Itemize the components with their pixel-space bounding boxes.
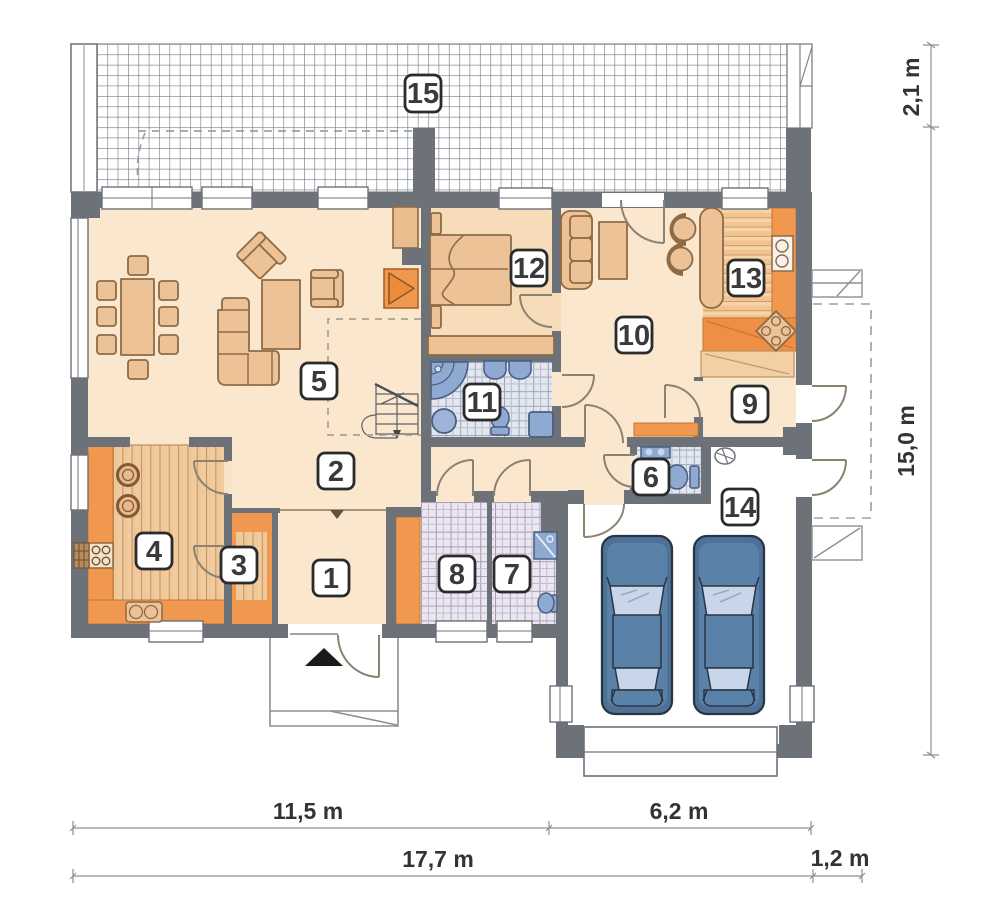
svg-text:11,5 m: 11,5 m (273, 798, 343, 824)
svg-text:11: 11 (467, 387, 498, 419)
svg-text:1: 1 (323, 563, 339, 595)
svg-text:6,2 m: 6,2 m (650, 798, 709, 824)
svg-text:9: 9 (742, 389, 758, 421)
svg-text:2,1 m: 2,1 m (898, 58, 924, 117)
svg-text:5: 5 (311, 366, 327, 398)
svg-text:15: 15 (407, 78, 439, 110)
svg-text:14: 14 (724, 492, 756, 524)
svg-text:3: 3 (231, 550, 247, 582)
svg-text:15,0 m: 15,0 m (893, 405, 919, 477)
svg-text:8: 8 (449, 559, 465, 591)
svg-text:17,7 m: 17,7 m (402, 846, 474, 872)
svg-text:10: 10 (618, 320, 650, 352)
svg-text:4: 4 (146, 536, 162, 568)
svg-text:7: 7 (504, 559, 520, 591)
svg-text:2: 2 (328, 456, 344, 488)
svg-text:12: 12 (513, 253, 545, 285)
svg-text:1,2 m: 1,2 m (811, 845, 870, 871)
svg-text:6: 6 (643, 462, 659, 494)
svg-text:13: 13 (730, 263, 762, 295)
